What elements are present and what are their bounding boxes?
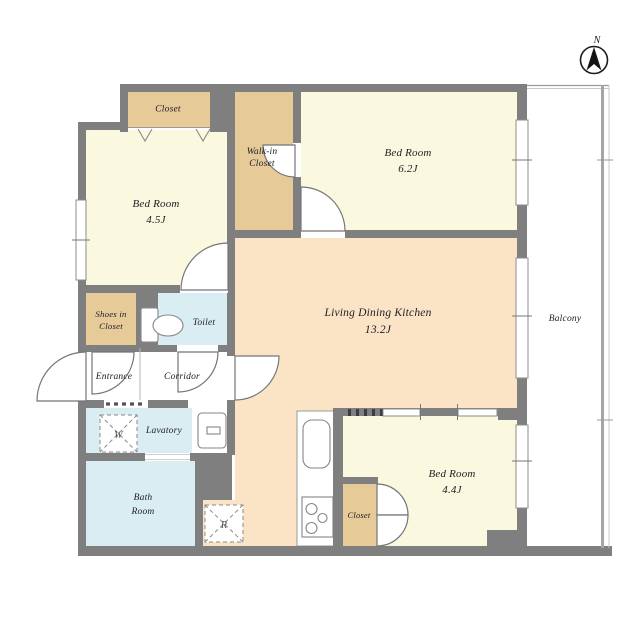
wall-segment xyxy=(227,230,527,238)
wall-segment xyxy=(120,84,527,92)
label-closet-bottom: Closet xyxy=(348,510,371,520)
sink-icon xyxy=(303,420,330,468)
wall-segment xyxy=(517,205,527,258)
window xyxy=(516,120,528,205)
label-bedroom-62: Bed Room xyxy=(384,147,431,159)
label-bedroom-45-size: 4.5J xyxy=(146,214,166,226)
label-bedroom-44-size: 4.4J xyxy=(442,484,462,496)
wall-segment xyxy=(341,477,378,484)
burner-icon xyxy=(306,523,317,534)
label-walkin-line1: Walk-in xyxy=(247,147,278,157)
wall-hatch xyxy=(356,409,359,416)
burner-icon xyxy=(306,504,317,515)
wall-segment xyxy=(78,546,612,556)
label-closet-top: Closet xyxy=(155,105,181,115)
room-bathroom xyxy=(86,461,195,546)
window xyxy=(383,409,420,416)
window xyxy=(458,409,497,416)
toilet-bowl-icon xyxy=(153,315,183,336)
doorway xyxy=(177,345,218,352)
kitchen-counter xyxy=(297,411,334,546)
label-bedroom-44: Bed Room xyxy=(428,468,475,480)
wall-segment xyxy=(78,130,86,200)
label-lavatory: Lavatory xyxy=(145,426,182,436)
label-bath-line1: Bath xyxy=(134,493,153,503)
window xyxy=(516,258,528,378)
wall-hatch xyxy=(364,409,367,416)
compass-north-label: N xyxy=(593,35,602,46)
label-shoes-line1: Shoes in xyxy=(95,309,127,319)
label-bedroom-62-size: 6.2J xyxy=(398,163,418,175)
wall-hatch xyxy=(348,409,351,416)
label-entrance: Entrance xyxy=(95,372,132,382)
wall-segment xyxy=(517,378,527,425)
window xyxy=(516,425,528,508)
label-bedroom-45: Bed Room xyxy=(132,198,179,210)
label-balcony: Balcony xyxy=(549,314,582,324)
doorway xyxy=(188,400,227,408)
label-walkin-line2: Closet xyxy=(249,159,275,169)
wall-segment xyxy=(333,408,527,416)
label-toilet: Toilet xyxy=(193,318,216,328)
wall-segment xyxy=(78,122,128,130)
wall-hatch xyxy=(372,409,375,416)
floorplan-page: W R N Closet Walk-in Closet Bed Room 6.2… xyxy=(0,0,640,640)
burner-icon xyxy=(318,514,327,523)
wall-segment xyxy=(227,400,235,455)
label-bath-line2: Room xyxy=(131,507,155,517)
floorplan-svg: W R N Closet Walk-in Closet Bed Room 6.2… xyxy=(0,0,640,640)
doorway xyxy=(227,356,235,400)
wall-segment xyxy=(517,508,527,556)
washer-label: W xyxy=(114,430,124,441)
wall-segment xyxy=(195,461,203,546)
room-shoes-closet xyxy=(86,293,136,347)
washbasin-faucet-icon xyxy=(207,427,220,434)
door-arc-entrance xyxy=(37,352,86,401)
refrigerator-label: R xyxy=(220,520,227,531)
wall-segment xyxy=(78,400,86,556)
label-corridor: Corridor xyxy=(164,372,200,382)
label-ldk: Living Dining Kitchen xyxy=(323,307,431,319)
label-shoes-line2: Closet xyxy=(99,321,123,331)
wall-segment xyxy=(517,84,527,120)
compass: N xyxy=(581,35,608,74)
label-ldk-size: 13.2J xyxy=(365,324,392,336)
